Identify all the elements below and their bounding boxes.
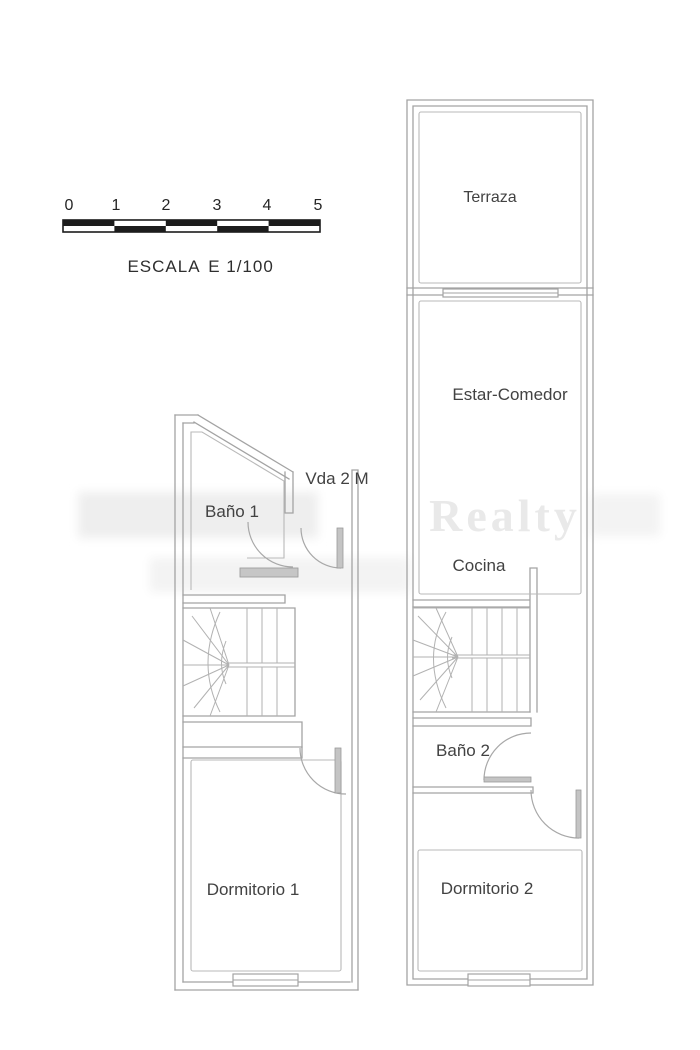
stair-enclosure-wall [183, 608, 295, 716]
bath2-bottom-wall [413, 787, 533, 793]
living-room-inset-outline [419, 301, 581, 594]
bedroom1-door-leaf [335, 748, 341, 793]
stair-winder-rays [183, 608, 229, 716]
stair-winder-curves [434, 612, 453, 708]
scale-number: 4 [263, 197, 272, 214]
scale-segment [217, 226, 268, 232]
bedroom2-door-arc [531, 790, 579, 838]
main-floor-staircase [413, 608, 530, 712]
bath2-door-leaf [484, 777, 531, 782]
room-label-dormitorio2: Dormitorio 2 [441, 879, 534, 898]
scale-number: 3 [213, 197, 222, 214]
kitchen-wall [413, 568, 537, 712]
stair-treads [472, 608, 517, 712]
bedroom2-door-leaf [576, 790, 581, 838]
room-label-dormitorio1: Dormitorio 1 [207, 880, 300, 899]
scale-caption-ratio: E 1/100 [208, 257, 274, 276]
stair-divider [228, 663, 295, 667]
understair-wall [183, 722, 302, 747]
scale-number: 0 [65, 197, 74, 214]
main-floor-room-insets [418, 112, 582, 971]
room-label-bano2: Baño 2 [436, 741, 490, 760]
stair-winder-rays [413, 608, 458, 712]
scale-caption-escala: ESCALA [127, 257, 200, 276]
stair-divider [452, 655, 530, 658]
bath2-door-arc [484, 733, 531, 780]
scale-segment [269, 220, 320, 226]
inner-wall [413, 106, 587, 979]
outer-wall [407, 100, 593, 985]
main-floor-walls [407, 100, 593, 985]
annotation-vda-2m: Vda 2 M [305, 469, 368, 488]
room-label-estar-comedor: Estar-Comedor [452, 385, 568, 404]
scale-number: 2 [162, 197, 171, 214]
scale-segment [114, 226, 165, 232]
bath2-top-wall [413, 718, 531, 726]
scale-bar: 0 1 2 3 4 5 ESCALA E 1/100 [63, 197, 323, 276]
watermark-smudge-right [590, 494, 660, 536]
watermark: Realty [78, 490, 660, 592]
upper-floor-staircase [183, 608, 295, 716]
scale-bar-checkerboard [63, 220, 320, 232]
main-floor-doors [484, 733, 581, 838]
diagonal-wall [194, 415, 293, 479]
watermark-text: Realty [429, 490, 581, 541]
floorplan-drawing: Realty 0 1 2 3 4 5 ESCALA E 1/100 [0, 0, 700, 1050]
bedroom1-top-wall [183, 747, 302, 758]
scale-number: 5 [314, 197, 323, 214]
upper-floor-windows [233, 974, 298, 986]
entry-door-leaf [337, 528, 343, 568]
bath1-thick-wall [240, 568, 298, 577]
room-label-cocina: Cocina [453, 556, 506, 575]
bath1-south-wall [183, 595, 285, 603]
main-floor-plan: Terraza Estar-Comedor Cocina Baño 2 Dorm… [407, 100, 593, 986]
room-label-bano1: Baño 1 [205, 502, 259, 521]
room-label-terraza: Terraza [463, 189, 516, 206]
scale-number: 1 [112, 197, 121, 214]
scale-segment [63, 220, 114, 226]
bedroom1-inset-outline [191, 760, 341, 971]
stair-treads [247, 608, 277, 716]
bedroom2-inset-outline [418, 850, 582, 971]
scale-segment [166, 220, 217, 226]
watermark-smudge-left [78, 492, 318, 538]
floor-plan-page: Realty 0 1 2 3 4 5 ESCALA E 1/100 [0, 0, 700, 1050]
right-wall [352, 470, 358, 990]
